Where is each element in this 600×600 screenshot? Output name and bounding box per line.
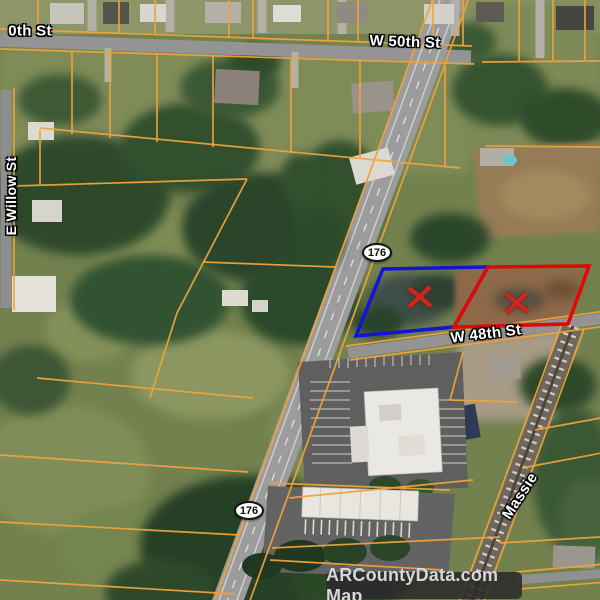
street-label-w-50th: W 50th St (369, 32, 441, 51)
parcel-map-viewport[interactable]: W 50th St 0th St E Willow St W 48th St M… (0, 0, 600, 600)
highway-176-shield-south: 176 (234, 501, 264, 520)
street-label-e-willow: E Willow St (3, 157, 19, 236)
watermark-text: ARCountyData.com Map (326, 565, 522, 600)
restaurant-site (298, 352, 468, 497)
highway-176-shield-north-label: 176 (368, 247, 386, 259)
watermark-badge: ARCountyData.com Map (326, 572, 522, 599)
highway-176-shield-south-label: 176 (240, 505, 258, 517)
highway-176-shield-north: 176 (362, 243, 392, 262)
street-label-w-50th-clipped: 0th St (8, 23, 51, 40)
